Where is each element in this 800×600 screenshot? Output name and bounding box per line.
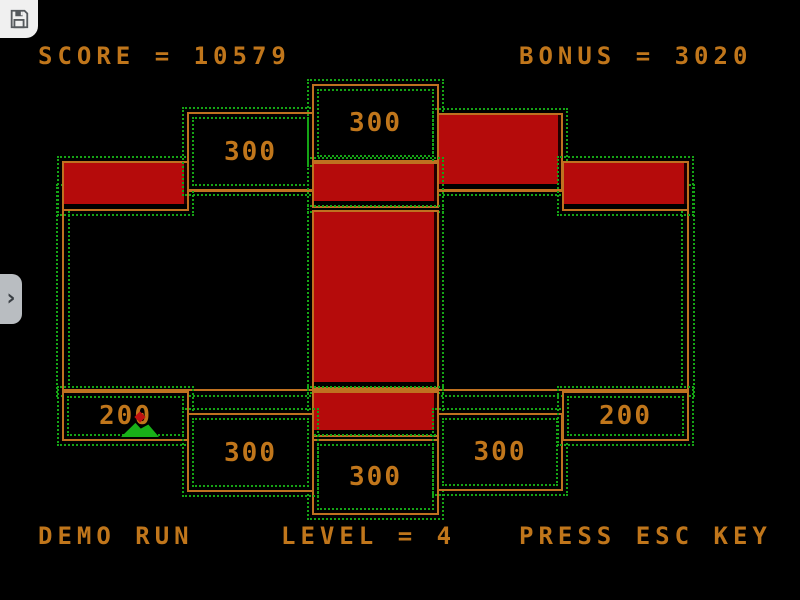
player-sprite [121, 413, 159, 438]
sprite-green-body [121, 421, 159, 437]
bonus-text: BONUS = 3020 [519, 44, 752, 68]
red-block-top-right [562, 161, 689, 211]
floppy-icon [8, 8, 30, 30]
score-box-label: 300 [224, 438, 277, 468]
panel-expand-tab[interactable]: › [0, 274, 22, 324]
sprite-red-dot [134, 411, 145, 422]
score-box-300-top-left: 300 [187, 112, 314, 191]
score-text: SCORE = 10579 [38, 44, 291, 68]
red-block-top-mid-right [437, 113, 563, 191]
score-box-300-bottom-left: 300 [187, 413, 314, 492]
red-block-center-main [312, 210, 439, 389]
chevron-right-icon: › [6, 288, 15, 310]
score-box-label: 300 [474, 437, 527, 467]
red-block-center-lower [312, 391, 439, 437]
score-box-300-top-center: 300 [312, 84, 439, 162]
game-screen: SCORE = 10579 BONUS = 3020 DEMO RUN LEVE… [0, 0, 800, 600]
red-block-center-upper [312, 162, 439, 208]
red-block-top-left [62, 161, 189, 211]
save-button[interactable] [0, 0, 38, 38]
score-box-label: 300 [349, 462, 402, 492]
demo-run-text: DEMO RUN [38, 524, 194, 548]
score-box-label: 300 [349, 108, 402, 138]
score-box-label: 300 [224, 137, 277, 167]
level-text: LEVEL = 4 [281, 524, 456, 548]
score-box-200-bottom-right: 200 [562, 391, 689, 441]
score-box-300-bottom-center: 300 [312, 439, 439, 515]
score-box-label: 200 [599, 401, 652, 431]
press-esc-text: PRESS ESC KEY [519, 524, 772, 548]
score-box-300-bottom-right: 300 [437, 413, 563, 491]
